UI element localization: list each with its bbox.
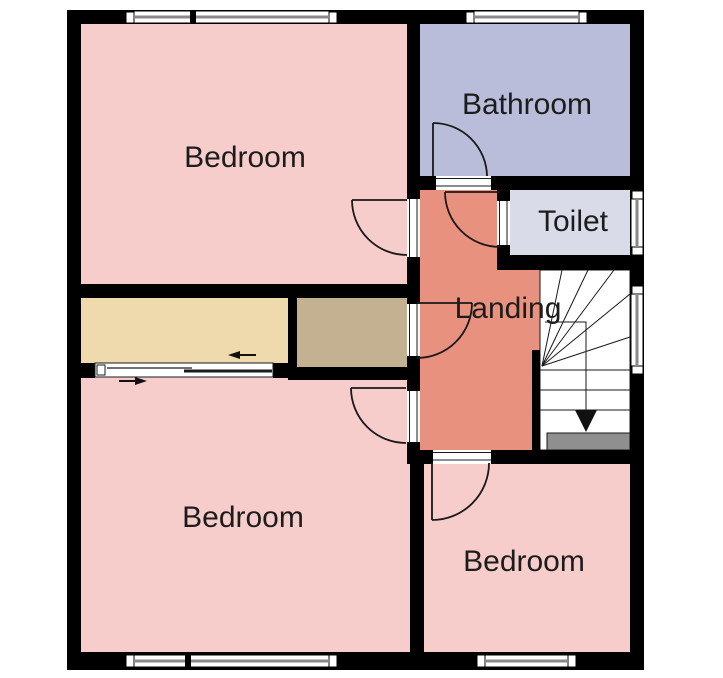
window-toilet [631,191,643,255]
window-bedroom-bottom-right [477,655,576,667]
doorway-bedroom-top-left [407,193,420,263]
wall-store-bedroom2 [288,367,420,380]
label-landing: Landing [455,292,562,325]
doorway-store [407,298,420,362]
wall-bedroom-divider-bottom [410,450,424,652]
label-bathroom: Bathroom [462,88,592,121]
window-bedroom-bottom-left [126,655,337,667]
wall-slide-end-left [81,363,95,378]
label-bedroom-top-left: Bedroom [184,141,306,174]
room-store-left [81,298,288,363]
wall-slide-end-right [273,363,288,378]
floor-plan: Bedroom Bathroom Toilet Landing Bedroom … [0,0,723,678]
wall-outer-left [67,10,81,670]
doorway-bedroom-bottom-left [407,385,420,448]
wall-landing-stairs [532,350,540,450]
label-bedroom-bottom-right: Bedroom [463,545,585,578]
doorway-bathroom [430,176,497,190]
label-bedroom-bottom-left: Bedroom [182,501,304,534]
window-bedroom-top-left [126,11,337,23]
label-toilet: Toilet [538,205,609,238]
room-store-right [297,298,407,367]
sliding-door-jamb [97,365,105,375]
doorway-bedroom-bottom-right [427,450,497,464]
stairs-half-landing [547,433,630,450]
doorway-toilet [497,196,510,250]
wall-toilet-bottom [497,255,644,270]
window-stairs [631,286,643,374]
wall-bedroom1-store [81,284,420,298]
window-bathroom [466,11,587,23]
